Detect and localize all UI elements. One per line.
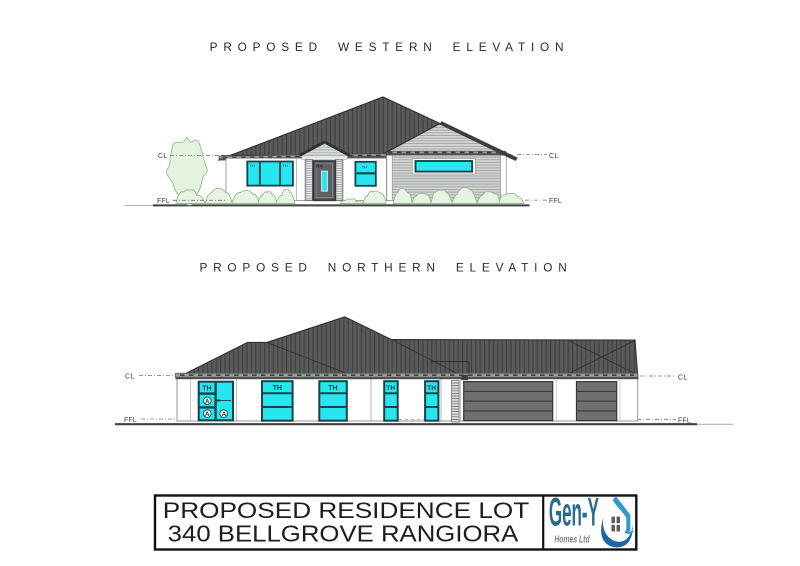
svg-text:TH: TH	[250, 163, 255, 168]
svg-text:TH: TH	[273, 385, 282, 392]
svg-text:TH: TH	[202, 386, 211, 393]
svg-text:RH: RH	[316, 163, 323, 168]
svg-text:TH: TH	[386, 385, 395, 392]
svg-text:TH: TH	[282, 163, 287, 168]
svg-text:A: A	[205, 411, 210, 418]
svg-text:Gen-Y: Gen-Y	[549, 489, 599, 535]
svg-text:CL: CL	[549, 153, 559, 160]
svg-text:PROPOSED WESTERN ELEVATION: PROPOSED WESTERN ELEVATION	[210, 40, 570, 54]
svg-text:PROPOSED RESIDENCE LOT: PROPOSED RESIDENCE LOT	[163, 499, 530, 524]
svg-text:TH: TH	[362, 165, 367, 170]
svg-text:FFL: FFL	[124, 417, 137, 424]
svg-text:A: A	[205, 398, 210, 405]
svg-text:TH: TH	[427, 385, 436, 392]
svg-text:Homes Ltd: Homes Ltd	[554, 533, 590, 545]
svg-text:FFL: FFL	[157, 198, 170, 205]
svg-text:FFL: FFL	[549, 198, 562, 205]
svg-text:CL: CL	[678, 375, 688, 382]
svg-text:TH: TH	[328, 385, 337, 392]
svg-text:CL: CL	[158, 153, 168, 160]
svg-text:CL: CL	[125, 374, 135, 381]
svg-text:PROPOSED NORTHERN ELEVATION: PROPOSED NORTHERN ELEVATION	[199, 261, 572, 275]
svg-text:A: A	[222, 411, 227, 418]
svg-text:340 BELLGROVE RANGIORA: 340 BELLGROVE RANGIORA	[168, 522, 519, 547]
